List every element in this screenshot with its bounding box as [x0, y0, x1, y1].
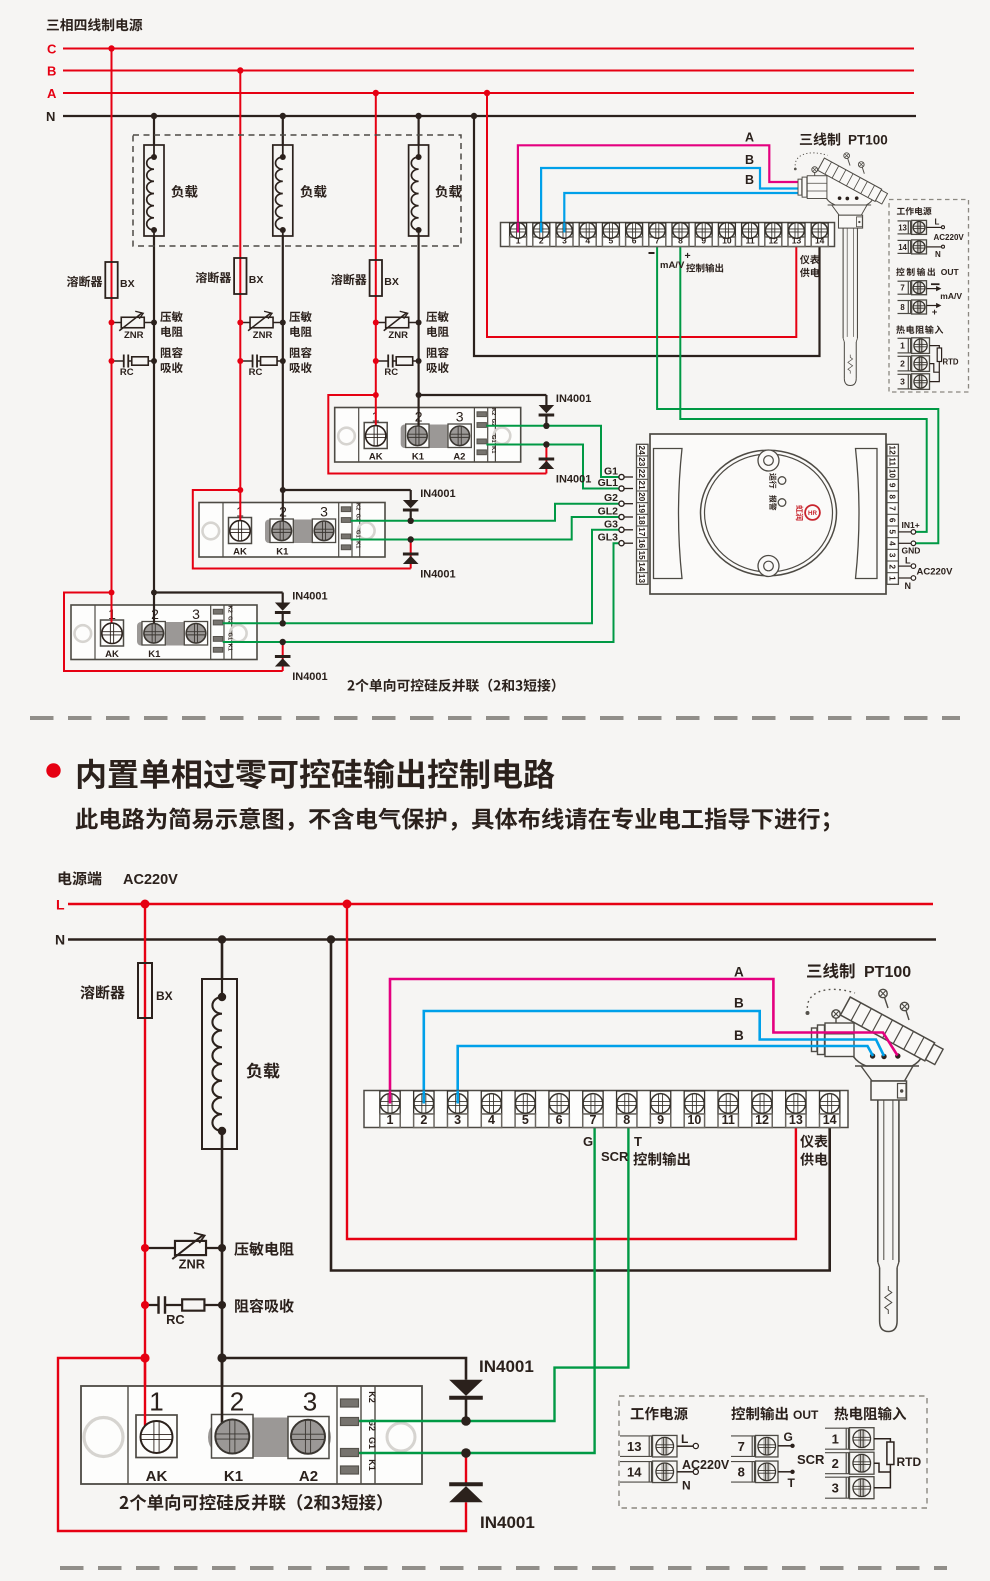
svg-text:3: 3: [303, 1387, 317, 1417]
svg-text:RTD: RTD: [897, 1455, 922, 1469]
svg-text:14: 14: [637, 562, 646, 572]
svg-text:RTD: RTD: [943, 358, 959, 367]
svg-text:9: 9: [657, 1113, 664, 1127]
svg-text:13: 13: [637, 574, 646, 584]
svg-text:RC: RC: [120, 367, 134, 378]
svg-text:19: 19: [637, 504, 646, 514]
svg-text:22: 22: [637, 469, 646, 479]
svg-text:BX: BX: [156, 989, 173, 1003]
svg-text:9: 9: [888, 483, 897, 488]
svg-text:ZNR: ZNR: [179, 1257, 205, 1272]
svg-text:AK: AK: [146, 1468, 168, 1485]
svg-text:N: N: [55, 932, 65, 948]
svg-text:B: B: [734, 1028, 744, 1043]
svg-text:BX: BX: [249, 274, 264, 286]
svg-text:N: N: [905, 581, 912, 591]
svg-text:L: L: [935, 218, 940, 227]
svg-text:8: 8: [678, 236, 683, 246]
svg-text:G1: G1: [490, 435, 496, 444]
svg-text:T: T: [788, 1476, 796, 1490]
svg-text:IN4001: IN4001: [420, 488, 455, 500]
svg-text:8: 8: [623, 1113, 630, 1127]
svg-text:24: 24: [637, 446, 646, 456]
svg-text:HR: HR: [808, 510, 817, 517]
svg-text:10: 10: [888, 469, 897, 479]
svg-text:K1: K1: [148, 649, 161, 660]
svg-text:2: 2: [420, 1113, 427, 1127]
svg-text:IN4001: IN4001: [292, 591, 327, 603]
svg-text:GL2: GL2: [598, 506, 619, 518]
svg-text:K1: K1: [276, 547, 289, 558]
svg-text:2: 2: [832, 1456, 839, 1471]
svg-text:1: 1: [387, 1113, 394, 1127]
svg-text:AC220V: AC220V: [123, 872, 178, 888]
svg-text:13: 13: [627, 1439, 641, 1454]
svg-text:L: L: [905, 556, 911, 566]
svg-text:4: 4: [585, 236, 590, 246]
svg-text:2: 2: [888, 565, 897, 570]
svg-text:N: N: [935, 250, 941, 259]
svg-text:6: 6: [556, 1113, 563, 1127]
svg-text:2: 2: [900, 359, 905, 369]
svg-text:L: L: [56, 897, 65, 913]
svg-text:5: 5: [609, 236, 614, 246]
svg-text:T: T: [634, 1134, 642, 1149]
svg-text:RC: RC: [249, 367, 263, 378]
svg-text:14: 14: [898, 243, 907, 252]
svg-text:10: 10: [722, 236, 732, 246]
svg-text:G1: G1: [604, 466, 618, 478]
svg-text:B: B: [47, 64, 56, 79]
svg-text:N: N: [46, 109, 55, 124]
svg-text:A: A: [745, 131, 754, 145]
svg-text:15: 15: [637, 551, 646, 561]
svg-text:RC: RC: [166, 1312, 185, 1327]
svg-text:4: 4: [488, 1113, 495, 1127]
svg-text:7: 7: [738, 1439, 745, 1454]
svg-text:IN4001: IN4001: [420, 569, 455, 581]
svg-text:PT100: PT100: [848, 133, 888, 148]
svg-text:RC: RC: [384, 367, 398, 378]
svg-text:G1: G1: [355, 530, 361, 539]
svg-text:ZNR: ZNR: [124, 330, 144, 341]
svg-text:K1: K1: [490, 446, 496, 454]
svg-text:1: 1: [149, 1387, 163, 1417]
svg-text:K2: K2: [490, 408, 496, 415]
svg-text:K1: K1: [355, 541, 361, 549]
svg-text:GL3: GL3: [598, 532, 619, 544]
svg-text:IN4001: IN4001: [480, 1513, 535, 1532]
svg-text:3: 3: [456, 409, 464, 425]
svg-text:17: 17: [637, 527, 646, 537]
svg-text:14: 14: [627, 1465, 642, 1480]
svg-text:5: 5: [888, 530, 897, 535]
svg-text:21: 21: [637, 481, 646, 491]
svg-text:7: 7: [888, 506, 897, 511]
svg-text:7: 7: [900, 284, 904, 293]
svg-text:K1: K1: [227, 644, 233, 652]
svg-text:AC220V: AC220V: [917, 567, 954, 578]
svg-text:B: B: [734, 996, 744, 1011]
svg-text:ZNR: ZNR: [388, 330, 408, 341]
svg-text:IN4001: IN4001: [292, 671, 327, 683]
svg-text:20: 20: [637, 492, 646, 502]
svg-text:G2: G2: [604, 492, 618, 504]
svg-text:12: 12: [769, 236, 779, 246]
svg-text:G: G: [583, 1134, 593, 1149]
svg-text:AK: AK: [233, 547, 247, 558]
svg-text:OUT: OUT: [941, 267, 960, 277]
svg-text:3: 3: [900, 377, 905, 387]
svg-text:7: 7: [655, 236, 660, 246]
svg-text:11: 11: [722, 1113, 735, 1127]
svg-text:+: +: [932, 307, 938, 318]
svg-text:18: 18: [637, 516, 646, 526]
svg-text:13: 13: [789, 1113, 803, 1127]
svg-text:IN1+: IN1+: [902, 520, 920, 530]
svg-text:IN4001: IN4001: [479, 1357, 534, 1376]
svg-text:G3: G3: [604, 518, 618, 530]
svg-text:23: 23: [637, 457, 646, 467]
svg-text:3: 3: [832, 1481, 839, 1496]
svg-text:PT100: PT100: [864, 964, 911, 981]
svg-text:K2: K2: [227, 605, 233, 612]
svg-text:10: 10: [687, 1113, 701, 1127]
svg-text:12: 12: [755, 1113, 769, 1127]
svg-text:8: 8: [900, 303, 905, 312]
svg-text:2: 2: [230, 1387, 244, 1417]
svg-text:8: 8: [888, 494, 897, 499]
svg-text:G1: G1: [227, 633, 233, 642]
svg-text:GND: GND: [902, 546, 921, 556]
svg-text:9: 9: [701, 236, 706, 246]
svg-text:1: 1: [516, 236, 521, 246]
svg-text:mA/V: mA/V: [660, 260, 685, 271]
svg-text:A: A: [47, 86, 57, 101]
svg-text:12: 12: [888, 446, 897, 456]
svg-text:K1: K1: [367, 1459, 377, 1471]
svg-text:K2: K2: [367, 1391, 377, 1403]
svg-text:K1: K1: [412, 452, 425, 463]
svg-text:1: 1: [832, 1432, 839, 1447]
svg-text:14: 14: [823, 1113, 837, 1127]
svg-text:AC220V: AC220V: [934, 233, 965, 242]
svg-text:1: 1: [900, 341, 905, 351]
svg-text:3: 3: [562, 236, 567, 246]
svg-text:SCR: SCR: [601, 1149, 629, 1164]
svg-text:SCR: SCR: [797, 1452, 825, 1467]
svg-text:N: N: [682, 1479, 691, 1493]
svg-text:OUT: OUT: [793, 1408, 819, 1422]
svg-text:AK: AK: [105, 649, 119, 660]
svg-text:G1: G1: [367, 1437, 377, 1449]
svg-text:1: 1: [888, 576, 897, 581]
svg-text:11: 11: [746, 236, 755, 246]
svg-text:11: 11: [888, 457, 897, 466]
svg-text:14: 14: [815, 236, 825, 246]
svg-text:mA/V: mA/V: [940, 291, 962, 301]
svg-text:4: 4: [888, 541, 897, 546]
svg-text:G: G: [784, 1430, 793, 1444]
svg-text:+: +: [685, 250, 691, 262]
svg-text:7: 7: [589, 1113, 596, 1127]
svg-text:AK: AK: [369, 452, 383, 463]
svg-text:3: 3: [192, 606, 200, 622]
svg-text:8: 8: [738, 1465, 745, 1480]
svg-text:2: 2: [539, 236, 544, 246]
svg-text:6: 6: [888, 518, 897, 523]
svg-text:ZNR: ZNR: [253, 330, 273, 341]
svg-text:GL1: GL1: [598, 477, 619, 489]
svg-text:5: 5: [522, 1113, 529, 1127]
svg-text:3: 3: [454, 1113, 461, 1127]
svg-text:C: C: [47, 42, 57, 57]
svg-text:A2: A2: [453, 452, 465, 463]
svg-text:A2: A2: [299, 1468, 318, 1485]
svg-text:16: 16: [637, 539, 646, 549]
svg-text:AC220V: AC220V: [682, 1458, 730, 1472]
svg-text:L: L: [681, 1432, 688, 1446]
svg-text:BX: BX: [384, 276, 399, 288]
svg-text:IN4001: IN4001: [556, 474, 591, 486]
svg-text:2: 2: [151, 606, 159, 622]
svg-text:K1: K1: [224, 1468, 243, 1485]
svg-text:3: 3: [320, 504, 328, 520]
svg-text:13: 13: [898, 223, 907, 232]
svg-text:K2: K2: [355, 503, 361, 510]
svg-text:B: B: [745, 153, 754, 167]
svg-text:A: A: [734, 965, 744, 980]
svg-text:B: B: [745, 173, 754, 187]
svg-text:6: 6: [632, 236, 637, 246]
svg-text:BX: BX: [120, 278, 135, 290]
svg-text:IN4001: IN4001: [556, 393, 591, 405]
svg-text:13: 13: [792, 236, 802, 246]
svg-text:3: 3: [888, 553, 897, 558]
